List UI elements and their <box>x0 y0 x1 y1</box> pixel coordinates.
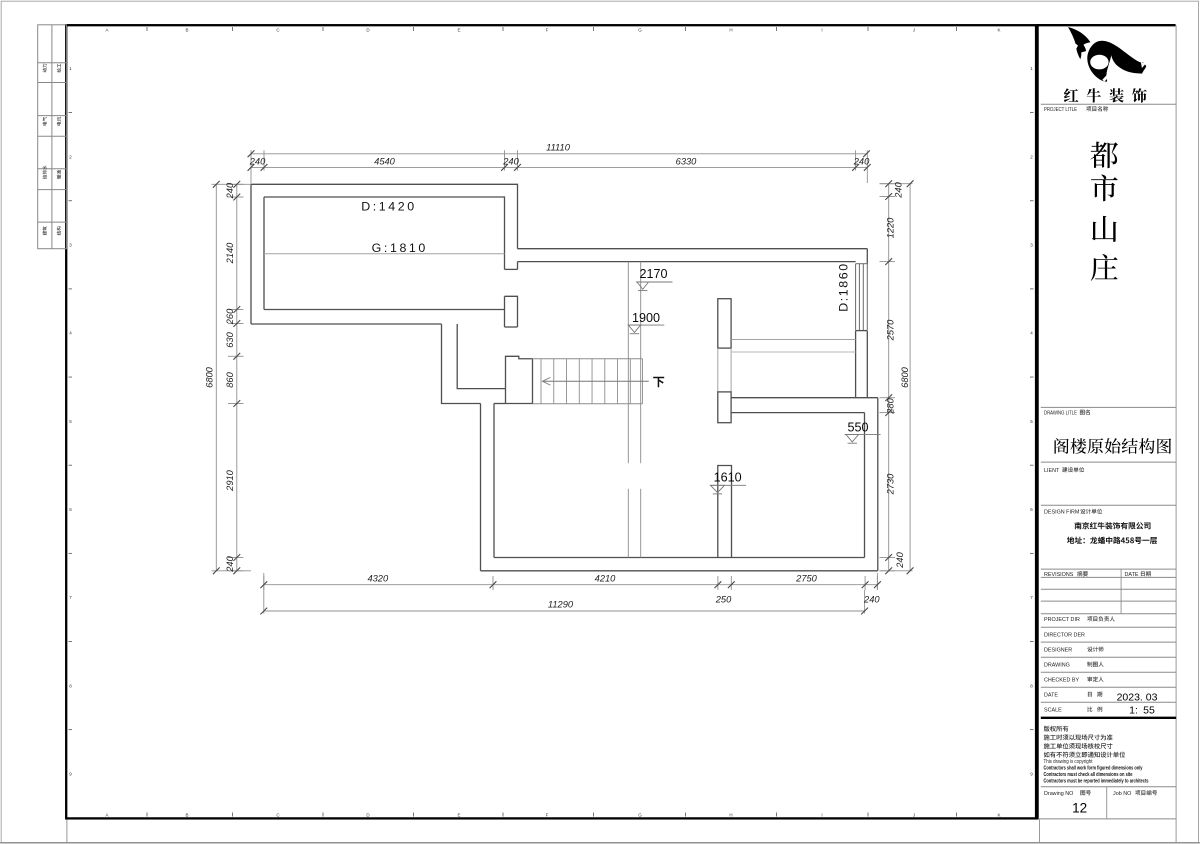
svg-text:11110: 11110 <box>546 143 571 153</box>
svg-text:DATE: DATE <box>1044 692 1058 698</box>
svg-text:2140: 2140 <box>225 242 235 265</box>
svg-text:H: H <box>729 813 732 818</box>
svg-text:DIRECTOR DER: DIRECTOR DER <box>1044 632 1085 638</box>
svg-text:DRAWING: DRAWING <box>1044 662 1070 668</box>
svg-text:I: I <box>821 28 822 33</box>
svg-text:55: 55 <box>1143 704 1155 716</box>
svg-text:B: B <box>185 813 188 818</box>
svg-text:240: 240 <box>853 156 870 166</box>
svg-text:I: I <box>821 813 822 818</box>
svg-text:H: H <box>729 28 732 33</box>
svg-text:240: 240 <box>502 156 519 166</box>
svg-text:550: 550 <box>847 420 868 434</box>
svg-text:G:1810: G:1810 <box>372 241 428 255</box>
svg-text:D:1420: D:1420 <box>361 199 417 213</box>
svg-text:6330: 6330 <box>676 156 698 166</box>
svg-text:K: K <box>997 28 1000 33</box>
svg-text:DRAWING LITLE: DRAWING LITLE <box>1044 410 1077 416</box>
svg-text:This drawing is copyright: This drawing is copyright <box>1044 759 1093 765</box>
svg-text:E: E <box>457 28 460 33</box>
svg-text:F: F <box>546 28 549 33</box>
svg-text:F: F <box>546 813 549 818</box>
svg-text:6800: 6800 <box>900 366 910 388</box>
svg-text:1:: 1: <box>1129 704 1138 716</box>
svg-text:4540: 4540 <box>374 156 396 166</box>
svg-text:Contractors must be reported i: Contractors must be reported immediately… <box>1044 778 1149 784</box>
svg-text:6800: 6800 <box>205 366 215 388</box>
svg-text:2750: 2750 <box>795 574 818 584</box>
svg-text:4320: 4320 <box>367 574 389 584</box>
svg-text:280: 280 <box>886 397 896 414</box>
svg-text:Drawing NO: Drawing NO <box>1044 791 1073 797</box>
svg-text:1220: 1220 <box>886 217 896 239</box>
svg-text:860: 860 <box>225 371 235 387</box>
svg-text:DESIGN FIRM: DESIGN FIRM <box>1044 510 1080 516</box>
svg-text:G: G <box>638 28 642 33</box>
svg-text:Job NO: Job NO <box>1113 791 1131 797</box>
svg-text:G: G <box>638 813 642 818</box>
svg-text:2910: 2910 <box>225 469 235 492</box>
svg-text:Contractors shall work form fi: Contractors shall work form figured dime… <box>1044 765 1143 771</box>
svg-text:2170: 2170 <box>639 267 667 281</box>
svg-text:11290: 11290 <box>548 600 574 610</box>
svg-text:J: J <box>913 28 915 33</box>
svg-text:DESIGNER: DESIGNER <box>1044 647 1072 653</box>
svg-text:240: 240 <box>894 181 904 198</box>
svg-text:A: A <box>105 813 108 818</box>
svg-text:CHECKED BY: CHECKED BY <box>1044 677 1079 683</box>
svg-text:1610: 1610 <box>714 471 742 485</box>
svg-text:K: K <box>997 813 1000 818</box>
svg-text:B: B <box>185 28 188 33</box>
svg-text:J: J <box>913 813 915 818</box>
svg-text:4210: 4210 <box>595 574 617 584</box>
svg-text:2730: 2730 <box>886 473 896 496</box>
svg-text:D:1860: D:1860 <box>836 262 850 312</box>
svg-text:SCALE: SCALE <box>1044 707 1062 713</box>
svg-text:240: 240 <box>895 551 905 568</box>
svg-text:260: 260 <box>225 308 235 325</box>
svg-text:PROJECT LITLE: PROJECT LITLE <box>1044 107 1077 113</box>
svg-text:E: E <box>457 813 460 818</box>
svg-text:LIENT: LIENT <box>1044 468 1060 474</box>
svg-text:240: 240 <box>863 595 880 605</box>
svg-text:240: 240 <box>225 182 235 199</box>
svg-text:2570: 2570 <box>886 319 896 342</box>
svg-text:240: 240 <box>225 555 235 572</box>
svg-text:2023. 03: 2023. 03 <box>1117 691 1158 703</box>
svg-text:12: 12 <box>1072 800 1087 815</box>
svg-text:240: 240 <box>249 156 266 166</box>
svg-text:PROJECT DIR: PROJECT DIR <box>1044 617 1080 623</box>
svg-text:1900: 1900 <box>632 311 660 325</box>
svg-text:A: A <box>105 28 108 33</box>
svg-text:250: 250 <box>715 595 732 605</box>
svg-text:630: 630 <box>225 331 235 347</box>
svg-text:Contractors must check all dim: Contractors must check all dimensions on… <box>1044 772 1133 778</box>
